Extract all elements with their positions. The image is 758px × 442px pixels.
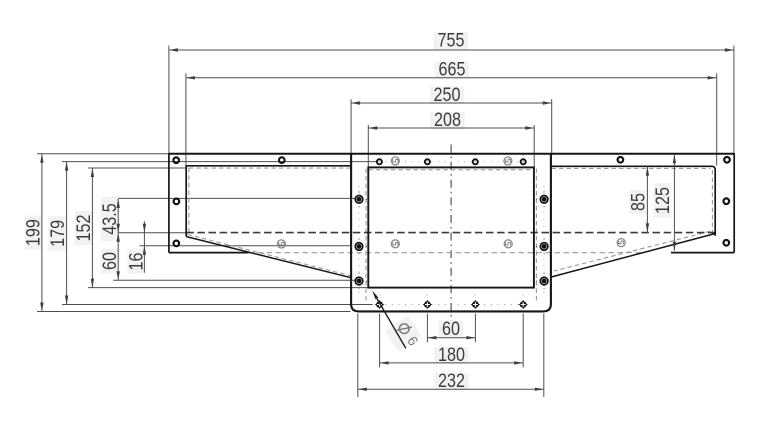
svg-text:199: 199: [22, 219, 44, 246]
svg-text:5: 5: [277, 241, 286, 246]
svg-text:5: 5: [504, 241, 513, 246]
svg-text:232: 232: [438, 370, 465, 392]
svg-text:179: 179: [47, 220, 69, 247]
svg-text:5: 5: [391, 158, 400, 163]
svg-text:665: 665: [439, 58, 466, 80]
svg-text:755: 755: [438, 29, 465, 51]
svg-text:85: 85: [627, 193, 649, 211]
svg-text:5: 5: [617, 240, 626, 245]
svg-text:5: 5: [504, 158, 513, 163]
svg-text:208: 208: [434, 109, 461, 131]
svg-text:180: 180: [438, 344, 465, 366]
svg-text:152: 152: [73, 215, 95, 242]
svg-text:125: 125: [652, 187, 674, 214]
svg-text:60: 60: [442, 318, 460, 340]
svg-text:5: 5: [391, 241, 400, 246]
svg-text:43.5: 43.5: [99, 203, 121, 235]
svg-text:16: 16: [125, 252, 147, 270]
svg-text:250: 250: [434, 84, 461, 106]
svg-text:60: 60: [99, 252, 121, 270]
